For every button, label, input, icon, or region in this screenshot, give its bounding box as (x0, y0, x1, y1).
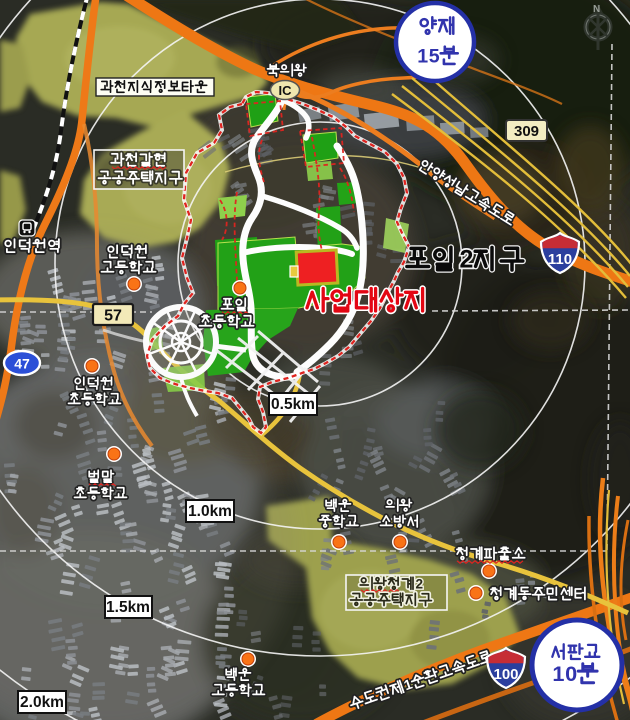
svg-text:1: 1 (417, 45, 428, 67)
svg-text:2: 2 (459, 246, 473, 274)
svg-text:100: 100 (493, 666, 518, 683)
svg-text:1.0km: 1.0km (188, 503, 232, 520)
svg-text:0: 0 (565, 661, 577, 686)
svg-text:5: 5 (429, 45, 440, 67)
svg-text:1: 1 (552, 661, 564, 686)
svg-text:IC: IC (279, 83, 293, 98)
svg-text:2: 2 (416, 576, 424, 591)
svg-text:2.0km: 2.0km (20, 694, 64, 711)
svg-text:309: 309 (514, 123, 539, 140)
svg-text:0.5km: 0.5km (271, 396, 315, 413)
svg-text:N: N (593, 4, 600, 15)
svg-text:57: 57 (104, 308, 122, 325)
svg-text:110: 110 (548, 251, 572, 268)
svg-text:1.5km: 1.5km (106, 599, 150, 616)
svg-text:47: 47 (14, 356, 30, 372)
